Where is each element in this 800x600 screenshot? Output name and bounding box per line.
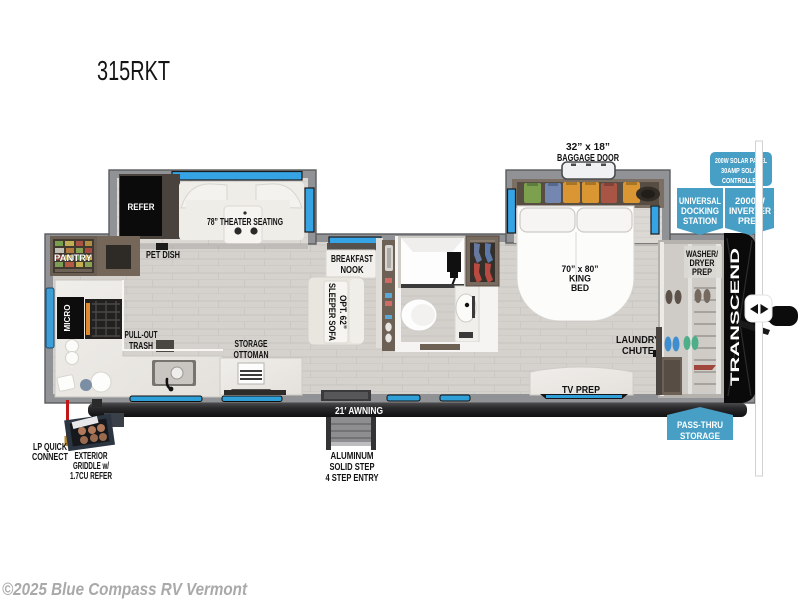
svg-text:CONTROLLER: CONTROLLER [722, 176, 760, 185]
svg-text:INVERTER: INVERTER [729, 206, 771, 216]
svg-text:OTTOMAN: OTTOMAN [234, 350, 269, 361]
svg-text:1.7CU REFER: 1.7CU REFER [70, 471, 113, 482]
svg-text:PREP: PREP [692, 267, 712, 277]
svg-text:PANTRY: PANTRY [54, 253, 93, 264]
svg-text:NOOK: NOOK [341, 265, 365, 276]
svg-text:SOLID STEP: SOLID STEP [330, 462, 375, 473]
svg-text:LAUNDRY: LAUNDRY [616, 335, 660, 346]
svg-text:STATION: STATION [683, 216, 717, 226]
svg-text:PULL-OUT: PULL-OUT [125, 330, 158, 341]
svg-text:OPT. 62”: OPT. 62” [337, 295, 348, 329]
svg-text:78” THEATER SEATING: 78” THEATER SEATING [207, 216, 283, 228]
svg-text:REFER: REFER [128, 202, 155, 213]
svg-text:SLEEPER SOFA: SLEEPER SOFA [326, 283, 337, 341]
svg-text:STORAGE: STORAGE [680, 431, 720, 441]
svg-text:4 STEP ENTRY: 4 STEP ENTRY [326, 473, 379, 484]
svg-text:PASS-THRU: PASS-THRU [677, 420, 723, 430]
svg-text:21′ AWNING: 21′ AWNING [335, 405, 383, 417]
svg-text:BREAKFAST: BREAKFAST [331, 254, 373, 265]
svg-text:UNIVERSAL: UNIVERSAL [679, 196, 721, 206]
svg-text:32” x 18”: 32” x 18” [566, 142, 610, 153]
svg-text:STORAGE: STORAGE [235, 339, 268, 350]
svg-text:315RKT: 315RKT [97, 55, 170, 86]
svg-text:TRASH: TRASH [129, 341, 153, 352]
svg-text:PET DISH: PET DISH [146, 250, 180, 261]
svg-text:DOCKING: DOCKING [681, 206, 719, 216]
svg-text:BED: BED [571, 283, 589, 294]
svg-text:CHUTE: CHUTE [622, 346, 654, 357]
svg-text:TRANSCEND: TRANSCEND [730, 248, 742, 386]
svg-text:BAGGAGE DOOR: BAGGAGE DOOR [557, 153, 620, 164]
svg-text:ALUMINUM: ALUMINUM [331, 451, 374, 462]
svg-text:CONNECT: CONNECT [32, 452, 68, 463]
svg-text:©2025 Blue Compass RV Vermont: ©2025 Blue Compass RV Vermont [2, 579, 248, 599]
svg-text:MICRO: MICRO [63, 305, 72, 332]
